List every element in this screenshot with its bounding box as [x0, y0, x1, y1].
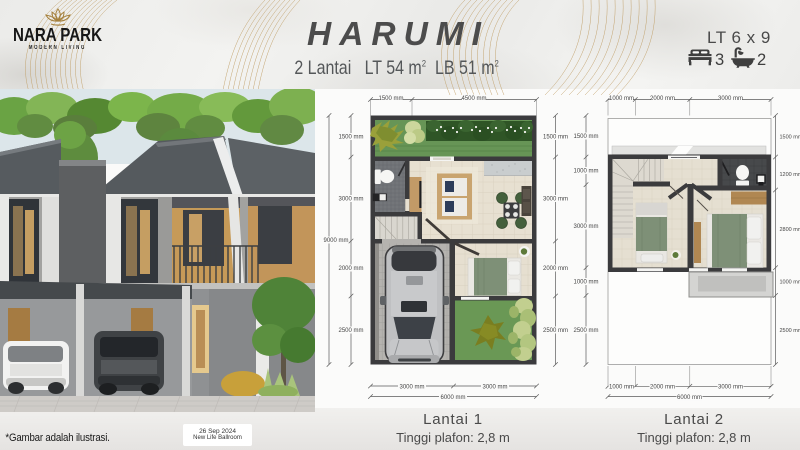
svg-text:9000 mm: 9000 mm — [323, 238, 348, 244]
svg-text:3000 mm: 3000 mm — [718, 385, 743, 391]
svg-text:2000 mm: 2000 mm — [543, 266, 568, 272]
svg-text:3000 mm: 3000 mm — [573, 224, 598, 230]
svg-text:2500 mm: 2500 mm — [338, 328, 363, 334]
svg-text:3000 mm: 3000 mm — [482, 384, 507, 390]
svg-text:1000 mm: 1000 mm — [573, 169, 598, 175]
svg-text:6000 mm: 6000 mm — [440, 395, 465, 401]
svg-text:1500 mm: 1500 mm — [780, 134, 800, 140]
svg-text:1000 mm: 1000 mm — [780, 279, 800, 285]
svg-text:3000 mm: 3000 mm — [543, 197, 568, 203]
svg-text:1500 mm: 1500 mm — [378, 96, 403, 102]
svg-text:2500 mm: 2500 mm — [780, 328, 800, 334]
svg-text:2000 mm: 2000 mm — [338, 266, 363, 272]
svg-text:3000 mm: 3000 mm — [338, 197, 363, 203]
svg-text:1000 mm: 1000 mm — [609, 96, 634, 102]
svg-text:1500 mm: 1500 mm — [338, 135, 363, 141]
svg-text:3000 mm: 3000 mm — [399, 384, 424, 390]
svg-text:1500 mm: 1500 mm — [543, 135, 568, 141]
svg-text:2: 2 — [757, 51, 766, 69]
svg-text:1000 mm: 1000 mm — [609, 385, 634, 391]
svg-text:3000 mm: 3000 mm — [718, 96, 743, 102]
svg-text:1500 mm: 1500 mm — [573, 134, 598, 140]
svg-text:1200 mm: 1200 mm — [780, 172, 800, 178]
svg-text:6000 mm: 6000 mm — [677, 395, 702, 401]
svg-text:2500 mm: 2500 mm — [543, 328, 568, 334]
svg-text:2000 mm: 2000 mm — [650, 385, 675, 391]
svg-text:2800 mm: 2800 mm — [780, 227, 800, 233]
svg-text:2000 mm: 2000 mm — [650, 96, 675, 102]
svg-text:2500 mm: 2500 mm — [573, 328, 598, 334]
svg-text:3: 3 — [715, 51, 724, 69]
svg-text:4500 mm: 4500 mm — [461, 96, 486, 102]
svg-text:1000 mm: 1000 mm — [573, 280, 598, 286]
